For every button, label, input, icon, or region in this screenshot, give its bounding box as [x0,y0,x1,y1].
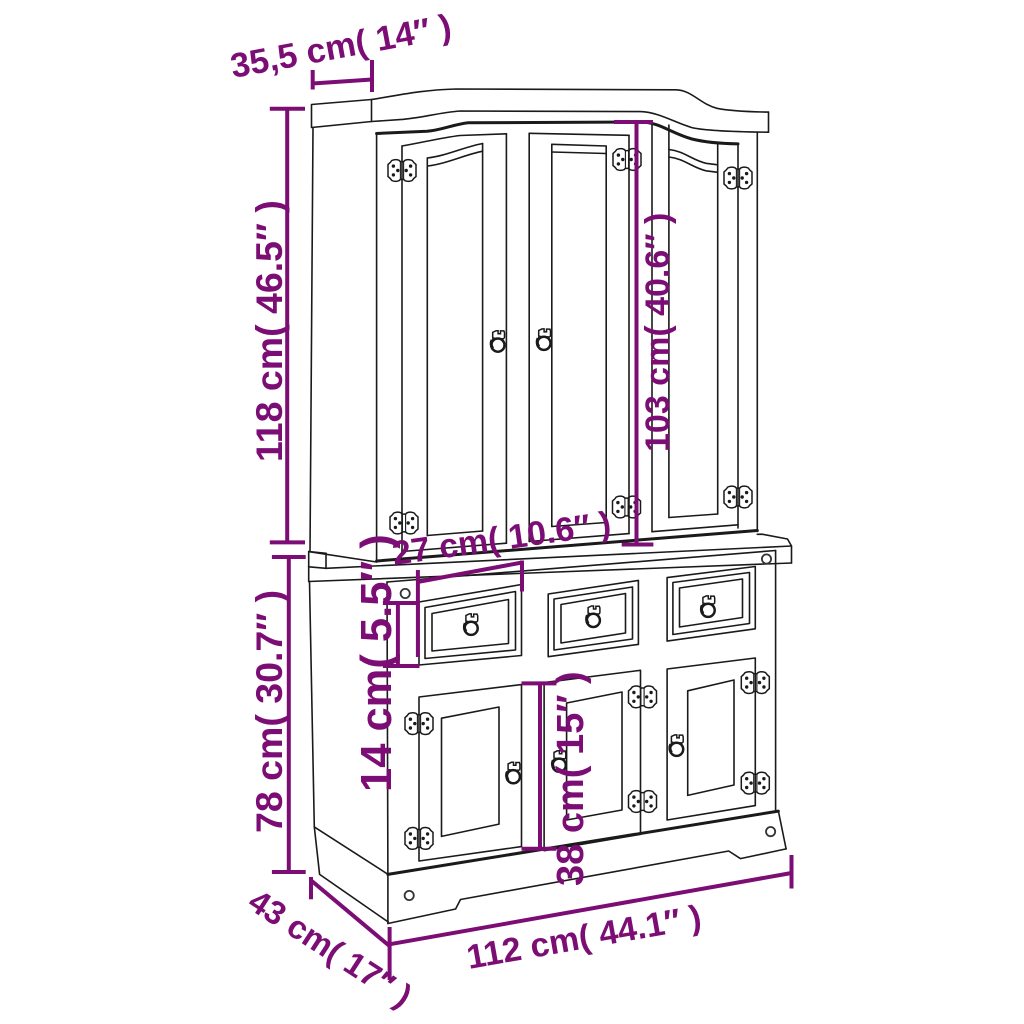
svg-text:14 cm( 5.5″ ): 14 cm( 5.5″ ) [353,534,401,792]
svg-text:38 cm( 15″ ): 38 cm( 15″ ) [550,671,592,886]
svg-text:118 cm( 46.5″ ): 118 cm( 46.5″ ) [248,200,290,462]
svg-text:78 cm( 30.7″ ): 78 cm( 30.7″ ) [248,590,290,833]
svg-text:103 cm( 40.6″ ): 103 cm( 40.6″ ) [639,213,677,452]
